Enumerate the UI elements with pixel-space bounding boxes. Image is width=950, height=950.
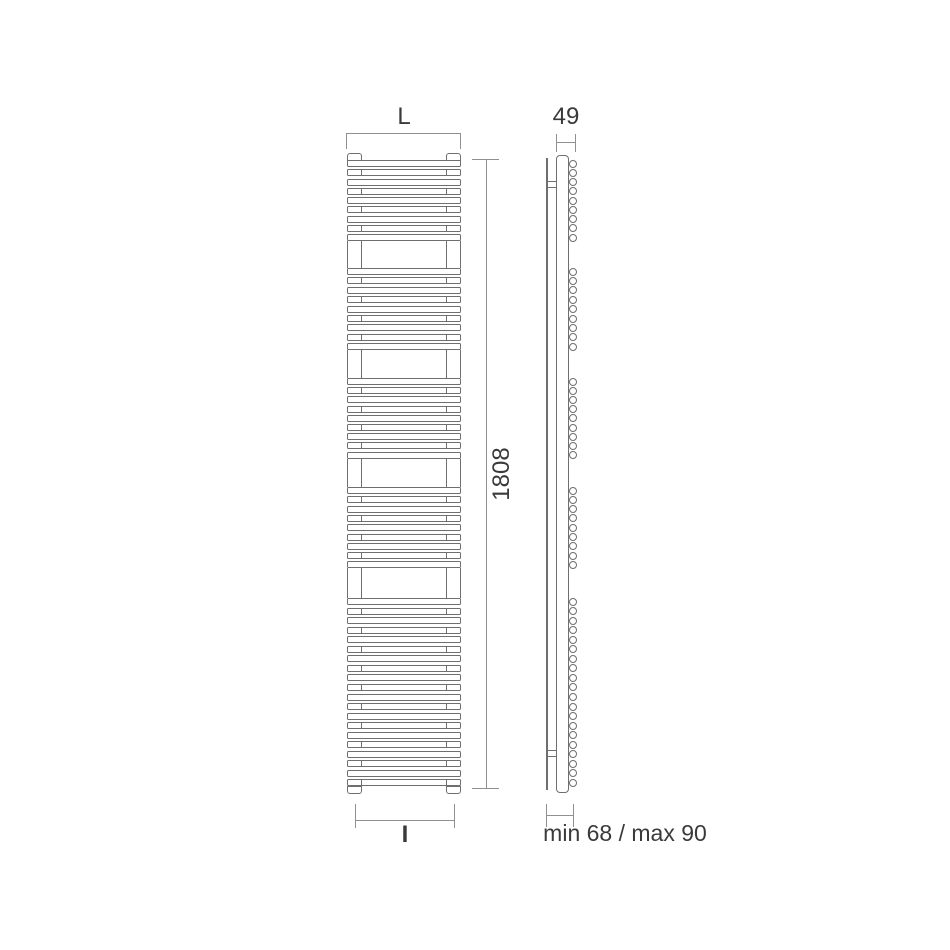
tube-bar (347, 674, 461, 681)
tube-end-circle (569, 626, 577, 634)
tube-bar (347, 732, 461, 739)
collector-line-mark (446, 388, 447, 393)
tube-end-circle (569, 234, 577, 242)
tube-bar (347, 496, 461, 503)
tube-end-circle (569, 277, 577, 285)
tube-bar (347, 406, 461, 413)
collector-line-mark (361, 425, 362, 430)
tube-bar (347, 722, 461, 729)
tube-bar (347, 287, 461, 294)
tube-bar (347, 561, 461, 568)
depth-value: 49 (536, 105, 596, 129)
tube-bar (347, 552, 461, 559)
tube-end-circle (569, 197, 577, 205)
tube-bar (347, 543, 461, 550)
collector-line-mark (446, 609, 447, 614)
collector-line-mark (446, 553, 447, 558)
tube-bar (347, 188, 461, 195)
width-label: L (374, 105, 434, 129)
tube-bar (347, 387, 461, 394)
tube-end-circle (569, 712, 577, 720)
tube-end-circle (569, 169, 577, 177)
tube-bar (347, 524, 461, 531)
tube-bar (347, 760, 461, 767)
collector-line-mark (446, 407, 447, 412)
collector-line-mark (361, 207, 362, 212)
collector-line-mark (361, 780, 362, 785)
collector-segment-left (347, 241, 362, 268)
wall-bracket-top (547, 181, 557, 188)
depth-dim-tick-right (575, 134, 576, 152)
tube-end-circle (569, 396, 577, 404)
tube-bar (347, 655, 461, 662)
collector-line-mark (446, 723, 447, 728)
tube-end-circle (569, 655, 577, 663)
tube-end-circle (569, 514, 577, 522)
tube-end-circle (569, 296, 577, 304)
collector-line-mark (446, 316, 447, 321)
collector-line-mark (361, 388, 362, 393)
tube-end-circle (569, 160, 577, 168)
tube-end-circle (569, 693, 577, 701)
height-dim-tick-bottom (472, 788, 499, 789)
interaxis-dim-tick-left (355, 804, 356, 828)
tube-end-circle (569, 387, 577, 395)
tube-end-circle (569, 769, 577, 777)
tube-bar (347, 378, 461, 385)
tube-end-circle (569, 505, 577, 513)
tube-bar (347, 515, 461, 522)
tube-bar (347, 268, 461, 275)
tube-bar (347, 343, 461, 350)
tube-bar (347, 684, 461, 691)
collector-line-mark (361, 535, 362, 540)
height-dim-line (486, 159, 487, 789)
tube-end-circle (569, 607, 577, 615)
collector-line-mark (446, 780, 447, 785)
tube-bar (347, 433, 461, 440)
collector-line-mark (361, 407, 362, 412)
tube-end-circle (569, 561, 577, 569)
tube-bar (347, 415, 461, 422)
depth-dim-line (556, 142, 576, 143)
tube-end-circle (569, 405, 577, 413)
tube-bar (347, 179, 461, 186)
collector-line-mark (446, 704, 447, 709)
width-dim-tick-left (346, 133, 347, 149)
tube-bar (347, 608, 461, 615)
tube-bar (347, 324, 461, 331)
collector-line-mark (446, 335, 447, 340)
tube-end-circle (569, 343, 577, 351)
collector-line-mark (446, 425, 447, 430)
collector-foot-right (446, 786, 461, 794)
radiator-technical-drawing: L 1808 I 49 min 68 / max 90 (0, 0, 950, 950)
tube-bar (347, 206, 461, 213)
tube-end-circle (569, 187, 577, 195)
wall-dim-line (546, 815, 574, 816)
collector-line-mark (446, 516, 447, 521)
tube-end-circle (569, 636, 577, 644)
collector-line-mark (361, 647, 362, 652)
tube-end-circle (569, 683, 577, 691)
tube-end-circle (569, 414, 577, 422)
tube-end-circle (569, 305, 577, 313)
collector-line-mark (361, 704, 362, 709)
collector-line-mark (446, 535, 447, 540)
collector-line-mark (446, 685, 447, 690)
collector-segment-right (446, 241, 461, 268)
tube-bar (347, 160, 461, 167)
tube-bar (347, 306, 461, 313)
collector-segment-right (446, 459, 461, 487)
collector-segment-left (347, 568, 362, 598)
collector-line-mark (361, 170, 362, 175)
tube-end-circle (569, 315, 577, 323)
tube-bar (347, 487, 461, 494)
collector-line-mark (446, 226, 447, 231)
collector-line-mark (361, 685, 362, 690)
collector-line-mark (446, 443, 447, 448)
tube-end-circle (569, 617, 577, 625)
tube-bar (347, 627, 461, 634)
collector-line-mark (446, 207, 447, 212)
tube-end-circle (569, 224, 577, 232)
tube-bar (347, 636, 461, 643)
collector-line-mark (361, 189, 362, 194)
tube-end-circle (569, 215, 577, 223)
tube-end-circle (569, 779, 577, 787)
collector-line-mark (361, 609, 362, 614)
tube-bar (347, 234, 461, 241)
collector-line-mark (446, 647, 447, 652)
collector-foot-left (347, 786, 362, 794)
collector-line-mark (446, 189, 447, 194)
tube-bar (347, 534, 461, 541)
tube-end-circle (569, 378, 577, 386)
tube-bar (347, 315, 461, 322)
tube-bar (347, 506, 461, 513)
interaxis-dim-tick-right (454, 804, 455, 828)
tube-bar (347, 741, 461, 748)
tube-end-circle (569, 731, 577, 739)
collector-line-mark (361, 516, 362, 521)
tube-end-circle (569, 496, 577, 504)
collector-segment-right (446, 568, 461, 598)
collector-segment-left (347, 350, 362, 378)
collector-line-mark (446, 742, 447, 747)
collector-line-mark (446, 761, 447, 766)
tube-bar (347, 751, 461, 758)
tube-bar (347, 216, 461, 223)
interaxis-label: I (375, 823, 435, 847)
tube-bar (347, 197, 461, 204)
collector-line-mark (446, 278, 447, 283)
tube-bar (347, 713, 461, 720)
tube-end-circle (569, 542, 577, 550)
tube-bar (347, 665, 461, 672)
collector-line-mark (361, 278, 362, 283)
tube-end-circle (569, 533, 577, 541)
wall-bracket-bottom (547, 750, 557, 757)
collector-line-mark (361, 723, 362, 728)
wall-distance-value: min 68 / max 90 (525, 822, 725, 845)
tube-end-circle (569, 750, 577, 758)
tube-end-circle (569, 451, 577, 459)
collector-segment-right (446, 350, 461, 378)
tube-end-circle (569, 424, 577, 432)
tube-end-circle (569, 324, 577, 332)
tube-bar (347, 169, 461, 176)
tube-bar (347, 452, 461, 459)
tube-end-circle (569, 741, 577, 749)
tube-bar (347, 296, 461, 303)
collector-line-mark (361, 443, 362, 448)
collector-line-mark (446, 666, 447, 671)
tube-bar (347, 598, 461, 605)
collector-line-mark (446, 297, 447, 302)
collector-line-mark (361, 742, 362, 747)
tube-end-circle (569, 206, 577, 214)
tube-end-circle (569, 760, 577, 768)
width-dim-tick-right (460, 133, 461, 149)
tube-end-circle (569, 433, 577, 441)
tube-end-circle (569, 286, 577, 294)
tube-end-circle (569, 333, 577, 341)
tube-bar (347, 779, 461, 786)
collector-line-mark (361, 226, 362, 231)
tube-bar (347, 396, 461, 403)
collector-line-mark (361, 497, 362, 502)
collector-line-mark (361, 553, 362, 558)
depth-dim-tick-left (556, 134, 557, 152)
tube-bar (347, 617, 461, 624)
collector-line-mark (361, 316, 362, 321)
width-dim-line (346, 133, 461, 134)
tube-end-circle (569, 552, 577, 560)
tube-end-circle (569, 674, 577, 682)
tube-end-circle (569, 178, 577, 186)
collector-line-mark (446, 170, 447, 175)
tube-bar (347, 646, 461, 653)
tube-bar (347, 225, 461, 232)
tube-end-circle (569, 268, 577, 276)
tube-bar (347, 703, 461, 710)
tube-end-circle (569, 598, 577, 606)
collector-line-mark (446, 497, 447, 502)
tube-bar (347, 424, 461, 431)
height-value: 1808 (490, 434, 514, 514)
tube-end-circle (569, 487, 577, 495)
collector-line-mark (361, 666, 362, 671)
collector-segment-left (347, 459, 362, 487)
tube-bar (347, 770, 461, 777)
tube-bar (347, 442, 461, 449)
tube-end-circle (569, 703, 577, 711)
wall-mount-line (546, 158, 548, 790)
tube-end-circle (569, 722, 577, 730)
collector-line-mark (361, 335, 362, 340)
tube-end-circle (569, 442, 577, 450)
tube-end-circle (569, 664, 577, 672)
collector-line-mark (361, 761, 362, 766)
collector-line-mark (361, 297, 362, 302)
tube-bar (347, 694, 461, 701)
tube-end-circle (569, 645, 577, 653)
tube-end-circle (569, 524, 577, 532)
side-collector-panel (556, 155, 569, 793)
collector-line-mark (361, 628, 362, 633)
tube-bar (347, 334, 461, 341)
tube-bar (347, 277, 461, 284)
collector-line-mark (446, 628, 447, 633)
